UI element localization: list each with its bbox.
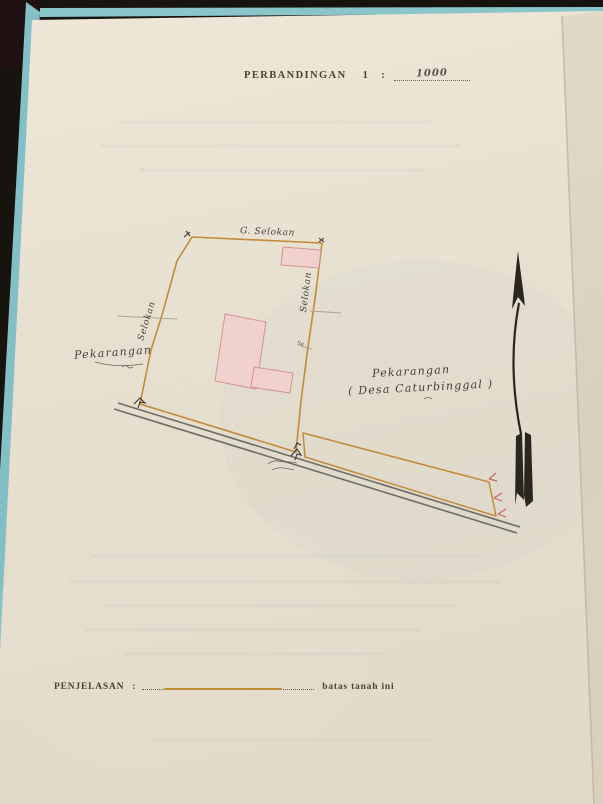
title-label: PERBANDINGAN — [244, 70, 347, 81]
title-number: 1 — [363, 70, 370, 81]
scale-value-handwritten: 1000 — [416, 67, 448, 79]
legend-label: PENJELASAN — [54, 682, 124, 692]
legend-line — [142, 680, 314, 692]
legend-line-solid — [164, 688, 282, 690]
legend-description: batas tanah ini — [322, 682, 394, 692]
scale-title: PERBANDINGAN 1 : 1000 — [244, 69, 470, 81]
scale-dotted-line: 1000 — [394, 69, 470, 81]
legend-separator: : — [132, 682, 136, 692]
edge-mark-label: 5a — [297, 340, 304, 348]
legend-row: PENJELASAN : batas tanah ini — [54, 680, 394, 692]
title-separator: : — [381, 70, 386, 81]
photo-of-document: 5a PERBAND — [0, 0, 603, 804]
paper-highlight — [0, 500, 370, 780]
